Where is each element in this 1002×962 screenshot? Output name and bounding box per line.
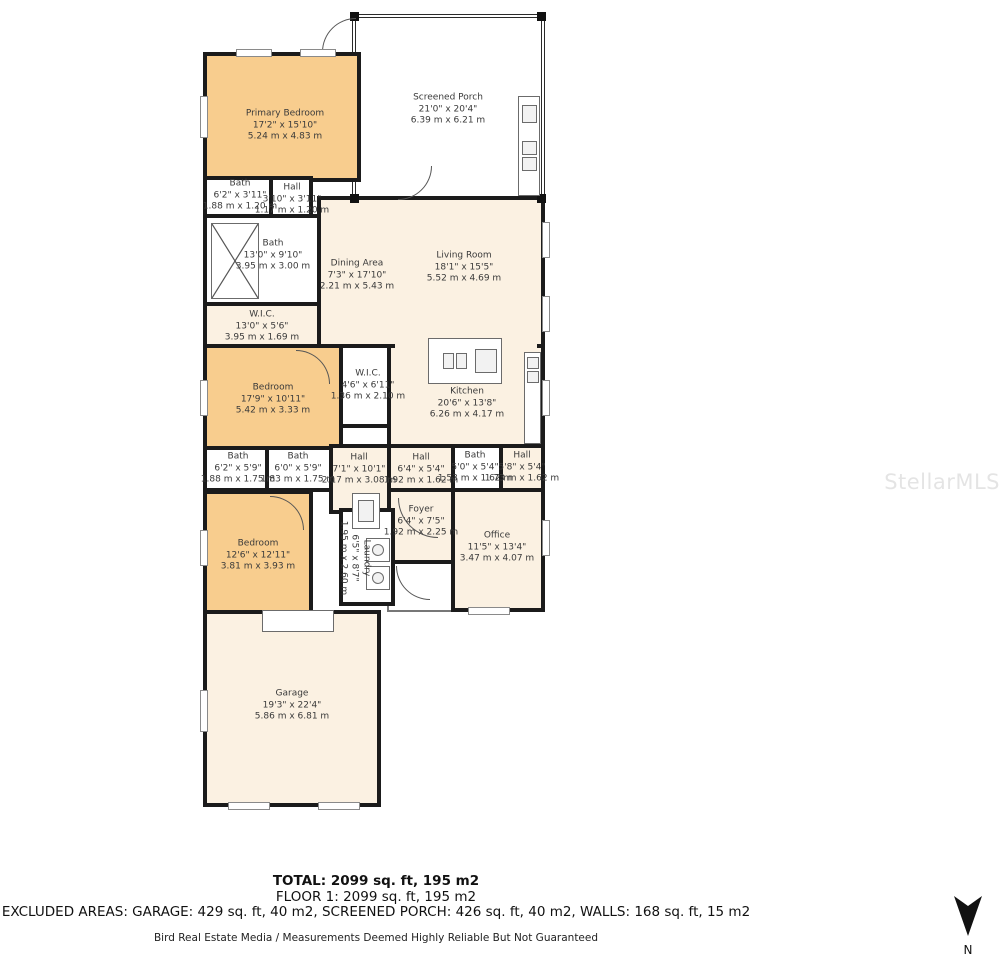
room-label-foyer: Foyer6'4" x 7'5"1.92 m x 2.25 m bbox=[384, 505, 458, 540]
room-label-office: Office11'5" x 13'4"3.47 m x 4.07 m bbox=[460, 531, 534, 566]
room-label-hall-1: Hall3'10" x 3'11"1.17 m x 1.20 m bbox=[255, 183, 329, 218]
window bbox=[200, 530, 208, 566]
disclaimer-text: Bird Real Estate Media / Measurements De… bbox=[0, 932, 752, 944]
compass-label: N bbox=[948, 943, 988, 957]
window bbox=[200, 690, 208, 732]
window bbox=[542, 380, 550, 416]
room-label-dining-area: Dining Area7'3" x 17'10"2.21 m x 5.43 m bbox=[320, 259, 394, 294]
room-label-kitchen: Kitchen20'6" x 13'8"6.26 m x 4.17 m bbox=[430, 387, 504, 422]
window bbox=[200, 380, 208, 416]
room-label-wic-1: W.I.C.13'0" x 5'6"3.95 m x 1.69 m bbox=[225, 310, 299, 345]
window bbox=[228, 802, 270, 810]
stellarmls-watermark: StellarMLS bbox=[884, 470, 1000, 494]
porch-post bbox=[350, 194, 359, 203]
room-label-laundry: Laundry6'5" x 8'7"1.95 m x 2.60 m bbox=[337, 521, 372, 595]
floorplan-page: Primary Bedroom17'2" x 15'10"5.24 m x 4.… bbox=[0, 0, 1002, 962]
north-arrow-icon bbox=[952, 894, 984, 938]
garage-entry-step bbox=[262, 610, 334, 632]
room-label-living-room: Living Room18'1" x 15'5"5.52 m x 4.69 m bbox=[427, 251, 501, 286]
window bbox=[236, 49, 272, 57]
room-label-screened-porch: Screened Porch21'0" x 20'4"6.39 m x 6.21… bbox=[411, 93, 485, 128]
porch-post bbox=[537, 12, 546, 21]
room-label-primary-bedroom: Primary Bedroom17'2" x 15'10"5.24 m x 4.… bbox=[246, 109, 324, 144]
floor-area-text: FLOOR 1: 2099 sq. ft, 195 m2 bbox=[0, 890, 752, 905]
porch-door-arc bbox=[322, 18, 356, 52]
room-label-bedroom-2: Bedroom17'9" x 10'11"5.42 m x 3.33 m bbox=[236, 383, 310, 418]
kitchen-island-icon bbox=[428, 338, 502, 384]
room-label-wic-2: W.I.C.4'6" x 6'11"1.36 m x 2.10 m bbox=[331, 369, 405, 404]
area-summary: TOTAL: 2099 sq. ft, 195 m2 FLOOR 1: 2099… bbox=[0, 874, 752, 944]
kitchen-counter-icon bbox=[524, 352, 541, 444]
window bbox=[542, 520, 550, 556]
porch-kitchen-icon bbox=[518, 96, 540, 196]
total-area-text: TOTAL: 2099 sq. ft, 195 m2 bbox=[0, 874, 752, 890]
window bbox=[300, 49, 336, 57]
room-label-bath-2: Bath13'0" x 9'10"3.95 m x 3.00 m bbox=[236, 239, 310, 274]
window bbox=[542, 296, 550, 332]
window bbox=[200, 96, 208, 138]
window bbox=[318, 802, 360, 810]
room-label-garage: Garage19'3" x 22'4"5.86 m x 6.81 m bbox=[255, 689, 329, 724]
room-label-hall-4: Hall5'8" x 5'4"1.73 m x 1.62 m bbox=[485, 451, 559, 486]
compass: N bbox=[948, 894, 988, 957]
room-label-bedroom-3: Bedroom12'6" x 12'11"3.81 m x 3.93 m bbox=[221, 539, 295, 574]
window bbox=[468, 607, 510, 615]
excluded-areas-text: EXCLUDED AREAS: GARAGE: 429 sq. ft, 40 m… bbox=[0, 905, 752, 920]
window bbox=[542, 222, 550, 258]
floor-plan: Primary Bedroom17'2" x 15'10"5.24 m x 4.… bbox=[0, 0, 1002, 830]
